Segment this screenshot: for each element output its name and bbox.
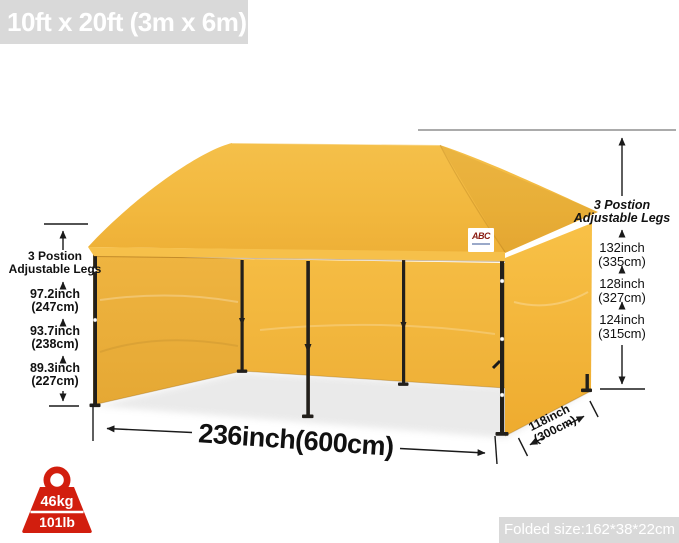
right-legs-header-line2: Adjustable Legs bbox=[572, 212, 672, 225]
width-dim-right-tick bbox=[495, 436, 497, 464]
back-wall bbox=[242, 259, 505, 388]
left-legs-header-line1: 3 Postion bbox=[7, 250, 103, 263]
leg-pin bbox=[93, 318, 97, 322]
tent-illustration bbox=[88, 143, 598, 438]
left-measurement-1: 97.2inch (247cm) bbox=[7, 288, 103, 314]
right-measurement-1-cm: (335cm) bbox=[572, 255, 672, 269]
width-dim-arrow-left bbox=[107, 429, 192, 433]
right-measurement-2-inch: 128inch bbox=[572, 277, 672, 291]
folded-size-label: Folded size:162*38*22cm bbox=[499, 517, 679, 543]
abc-logo: ABC bbox=[468, 228, 494, 252]
right-measurement-3-inch: 124inch bbox=[572, 313, 672, 327]
leg-foot bbox=[302, 415, 314, 419]
right-measurement-2-cm: (327cm) bbox=[572, 291, 672, 305]
weight-kg-label: 46kg bbox=[32, 494, 82, 510]
leg-foot bbox=[237, 370, 248, 373]
left-measurement-1-cm: (247cm) bbox=[7, 301, 103, 314]
right-measurement-2: 128inch (327cm) bbox=[572, 277, 672, 304]
right-legs-header: 3 Postion Adjustable Legs bbox=[572, 199, 672, 225]
leg-foot bbox=[398, 383, 409, 386]
leg-back-left bbox=[241, 260, 244, 371]
leg-back-right bbox=[586, 374, 589, 390]
right-measurement-3-cm: (315cm) bbox=[572, 327, 672, 341]
abc-logo-subline bbox=[472, 243, 490, 245]
size-banner-label: 10ft x 20ft (3m x 6m) bbox=[0, 0, 248, 44]
left-legs-header-line2: Adjustable Legs bbox=[7, 263, 103, 276]
leg-pin bbox=[500, 337, 504, 341]
size-banner: 10ft x 20ft (3m x 6m) bbox=[0, 0, 248, 44]
leg-foot bbox=[90, 404, 101, 408]
right-measurement-1: 132inch (335cm) bbox=[572, 241, 672, 268]
right-measurement-1-inch: 132inch bbox=[572, 241, 672, 255]
right-measurement-3: 124inch (315cm) bbox=[572, 313, 672, 340]
weight-icon-ring-hole bbox=[50, 473, 64, 487]
width-dim-arrow-right bbox=[400, 449, 485, 454]
weight-lb-label: 101lb bbox=[30, 514, 84, 530]
product-dimension-image: 10ft x 20ft (3m x 6m) 3 Postion Adjustab… bbox=[0, 0, 679, 543]
left-measurement-2: 93.7inch (238cm) bbox=[7, 325, 103, 351]
leg-front-right bbox=[500, 258, 504, 434]
leg-pin bbox=[500, 393, 504, 397]
abc-logo-text: ABC bbox=[468, 231, 494, 241]
left-legs-header: 3 Postion Adjustable Legs bbox=[7, 250, 103, 275]
left-measurement-3: 89.3inch (227cm) bbox=[7, 362, 103, 388]
folded-size-banner: Folded size:162*38*22cm bbox=[499, 517, 679, 543]
left-measurement-2-cm: (238cm) bbox=[7, 338, 103, 351]
leg-front-mid bbox=[306, 261, 310, 416]
left-measurement-3-cm: (227cm) bbox=[7, 375, 103, 388]
leg-pin bbox=[500, 279, 504, 283]
